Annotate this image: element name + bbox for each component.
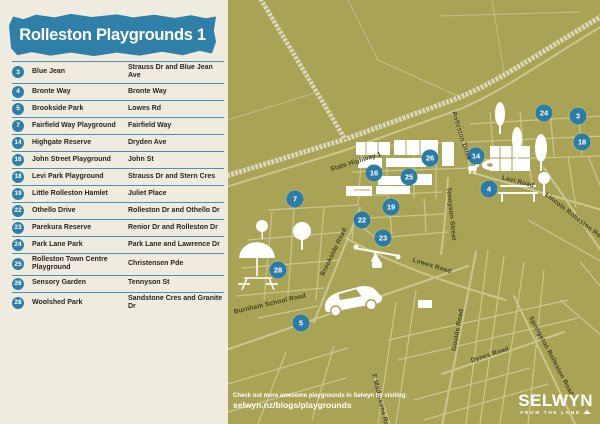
playground-location: Park Lane and Lawrence Dr <box>128 241 224 249</box>
playground-location: Bronte Way <box>128 88 224 96</box>
playground-location: Strauss Dr and Blue Jean Ave <box>128 64 224 81</box>
map-panel: 345714161819222324252628 State Highway 1… <box>228 0 600 424</box>
playground-name: Brookside Park <box>32 105 128 113</box>
selwyn-logo: SELWYN FROM THE LAND <box>518 392 593 416</box>
playground-number-badge: 3 <box>12 66 24 78</box>
list-item: 18Levi Park PlaygroundStrauss Dr and Ste… <box>12 168 224 185</box>
playground-location: Juliet Place <box>128 190 224 198</box>
playground-number-badge: 4 <box>12 86 24 98</box>
map-marker: 28 <box>270 262 287 279</box>
list-item: 19Little Rolleston HamletJuliet Place <box>12 185 224 202</box>
map-marker: 18 <box>574 134 591 151</box>
playground-number-badge: 26 <box>12 278 24 290</box>
list-item: 5Brookside ParkLowes Rd <box>12 100 224 117</box>
playground-number-badge: 28 <box>12 297 24 309</box>
playground-number-badge: 19 <box>12 188 24 200</box>
list-item: 22Othello DriveRolleston Dr and Othello … <box>12 202 224 219</box>
playground-number-badge: 5 <box>12 103 24 115</box>
playground-number-badge: 24 <box>12 239 24 251</box>
legend-panel: Rolleston Playgrounds 1 3Blue JeanStraus… <box>0 0 228 424</box>
map-marker: 25 <box>401 169 418 186</box>
playground-location: Tennyson St <box>128 279 224 287</box>
map-marker: 7 <box>287 191 304 208</box>
playground-number-badge: 7 <box>12 120 24 132</box>
playground-name: Fairfield Way Playground <box>32 122 128 130</box>
playground-name: Levi Park Playground <box>32 173 128 181</box>
map-marker: 26 <box>422 150 439 167</box>
playground-name: Blue Jean <box>32 68 128 76</box>
playground-list: 3Blue JeanStrauss Dr and Blue Jean Ave4B… <box>12 61 224 313</box>
page-title: Rolleston Playgrounds 1 <box>9 13 216 57</box>
playgrounds-poster: Rolleston Playgrounds 1 3Blue JeanStraus… <box>0 0 600 424</box>
playground-name: Park Lane Park <box>32 241 128 249</box>
playground-location: Christensen Pde <box>128 260 224 268</box>
car-icon <box>322 283 384 318</box>
playground-number-badge: 22 <box>12 205 24 217</box>
selwyn-logo-wordmark: SELWYN <box>518 392 593 409</box>
playground-name: Little Rolleston Hamlet <box>32 190 128 198</box>
list-item: 28Woolshed ParkSandstone Cres and Granit… <box>12 292 224 314</box>
map-marker: 23 <box>375 230 392 247</box>
map-footer: Check out more awesome playgrounds in Se… <box>233 393 407 410</box>
playground-name: Othello Drive <box>32 207 128 215</box>
list-item: 16John Street PlaygroundJohn St <box>12 151 224 168</box>
map-marker: 5 <box>293 315 310 332</box>
map-marker: 22 <box>354 212 371 229</box>
playground-name: Woolshed Park <box>32 299 128 307</box>
map-marker: 4 <box>481 181 498 198</box>
playground-name: Highgate Reserve <box>32 139 128 147</box>
playground-number-badge: 16 <box>12 154 24 166</box>
playground-number-badge: 18 <box>12 171 24 183</box>
playground-location: Lowes Rd <box>128 105 224 113</box>
list-item: 25Rolleston Town Centre PlaygroundChrist… <box>12 253 224 275</box>
map-marker: 19 <box>383 199 400 216</box>
selwyn-logo-tagline: FROM THE LAND <box>520 411 581 416</box>
mountain-icon <box>583 410 591 414</box>
playground-name: Sensory Garden <box>32 279 128 287</box>
list-item: 4Bronte WayBronte Way <box>12 83 224 100</box>
playground-name: Rolleston Town Centre Playground <box>32 256 128 273</box>
playground-name: Parekura Reserve <box>32 224 128 232</box>
main-roads <box>228 26 600 424</box>
playground-number-badge: 14 <box>12 137 24 149</box>
seesaw-icon <box>354 245 401 269</box>
playground-location: Rolleston Dr and Othello Dr <box>128 207 224 215</box>
playground-location: Sandstone Cres and Granite Dr <box>128 295 224 312</box>
list-item: 26Sensory GardenTennyson St <box>12 275 224 292</box>
list-item: 3Blue JeanStrauss Dr and Blue Jean Ave <box>12 61 224 83</box>
footer-text: Check out more awesome playgrounds in Se… <box>233 393 407 399</box>
playground-location: John St <box>128 156 224 164</box>
title-banner: Rolleston Playgrounds 1 <box>9 13 216 57</box>
map-marker: 3 <box>570 108 587 125</box>
playground-location: Dryden Ave <box>128 139 224 147</box>
playground-location: Fairfield Way <box>128 122 224 130</box>
map-marker: 24 <box>536 105 553 122</box>
footer-url: selwyn.nz/blogs/playgrounds <box>233 400 407 410</box>
playground-location: Renior Dr and Rolleston Dr <box>128 224 224 232</box>
list-item: 14Highgate ReserveDryden Ave <box>12 134 224 151</box>
playground-location: Strauss Dr and Stern Cres <box>128 173 224 181</box>
playground-name: Bronte Way <box>32 88 128 96</box>
playground-number-badge: 23 <box>12 222 24 234</box>
list-item: 23Parekura ReserveRenior Dr and Rollesto… <box>12 219 224 236</box>
playground-number-badge: 25 <box>12 258 24 270</box>
list-item: 7Fairfield Way PlaygroundFairfield Way <box>12 117 224 134</box>
road-network <box>228 0 600 424</box>
map-marker: 16 <box>366 165 383 182</box>
playground-name: John Street Playground <box>32 156 128 164</box>
list-item: 24Park Lane ParkPark Lane and Lawrence D… <box>12 236 224 253</box>
roundabout-icon <box>482 160 498 170</box>
